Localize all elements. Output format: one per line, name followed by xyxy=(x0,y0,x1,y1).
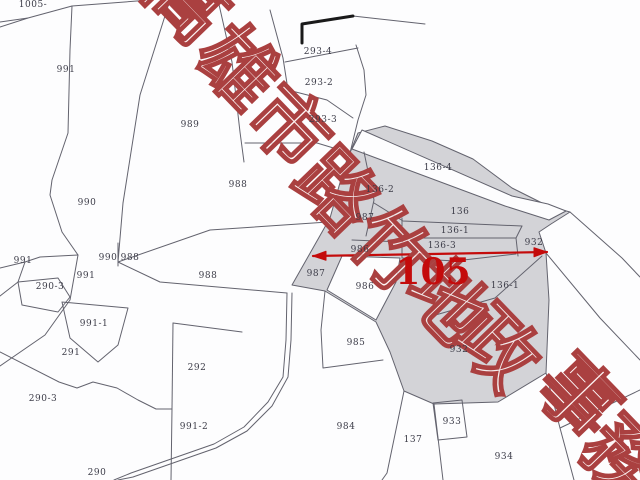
parcel-boundary-line xyxy=(546,373,574,480)
parcel-boundary-line xyxy=(0,255,78,268)
parcel-boundary-line xyxy=(50,6,78,255)
parcel-boundary-line xyxy=(114,293,287,480)
cadastral-map-canvas[interactable]: 高雄市路竹地政事務 1005-991989990988293-4293-2293… xyxy=(0,0,640,480)
parcel-boundary-line xyxy=(434,404,443,480)
parcel-boundary-line xyxy=(288,90,353,118)
parcel-boundary-line xyxy=(560,390,640,428)
parcel-boundary-line xyxy=(245,143,350,153)
parcel-boundary-line xyxy=(171,409,172,480)
parcel-boundary-line xyxy=(382,391,404,480)
parcel-boundary-line xyxy=(172,323,173,409)
parcel-boundary-line xyxy=(173,323,242,332)
parcel-boundary-line xyxy=(0,255,78,366)
parcel-boundary-line xyxy=(72,0,150,6)
parcel-boundary-line xyxy=(546,253,640,360)
parcel-boundaries-layer xyxy=(0,0,640,480)
parcel-boundary-line xyxy=(118,0,170,262)
parcel-boundary-line xyxy=(285,48,358,62)
thick-boundary-mark xyxy=(302,16,353,43)
parcel-boundary-line xyxy=(118,293,292,480)
parcel-boundary-line xyxy=(570,212,640,277)
parcel-boundary-line xyxy=(0,352,172,409)
parcel-boundary-line xyxy=(118,262,287,293)
parcel-boundary-line xyxy=(433,400,467,440)
parcel-boundary-line xyxy=(270,10,288,90)
parcel-boundary-line xyxy=(353,16,425,24)
parcel-boundary-line xyxy=(0,18,28,27)
parcel-boundary-line xyxy=(18,278,70,312)
parcel-boundary-line xyxy=(118,222,328,262)
parcel-boundary-line xyxy=(62,302,128,362)
parcel-boundary-line xyxy=(0,6,72,22)
parcel-boundary-line xyxy=(218,0,244,162)
